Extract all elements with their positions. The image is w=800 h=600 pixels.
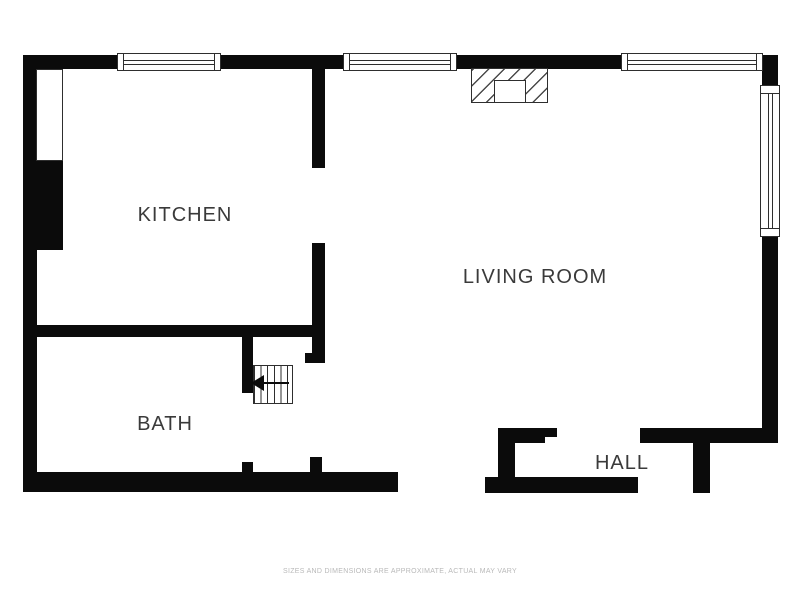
room-label-living-room: LIVING ROOM [445, 266, 625, 289]
hall-door-notch [545, 437, 557, 444]
kitchen-divider-lower [312, 243, 325, 363]
kitchen-divider-foot [305, 353, 313, 363]
hall-step-wall-vertical [693, 428, 710, 493]
fireplace-icon [471, 68, 548, 103]
window-frame-line [214, 54, 215, 70]
window-glass-line [627, 60, 757, 61]
window-frame-line [756, 54, 757, 70]
window-glass-line [768, 93, 769, 229]
fireplace-opening [494, 80, 526, 103]
window-glass-line [349, 64, 451, 65]
window-frame-line [123, 54, 124, 70]
window-frame-line [627, 54, 628, 70]
wall-alcove [36, 69, 63, 161]
door-jamb-stub-left [242, 462, 253, 472]
window-frame-line [450, 54, 451, 70]
window-glass-line [772, 93, 773, 229]
hall-right-wall-segment [640, 428, 693, 443]
window-glass-line [349, 60, 451, 61]
window-glass-line [123, 60, 215, 61]
window-symbol-living-right [621, 53, 763, 71]
kitchen-divider-upper [312, 69, 325, 168]
hall-top-right-horizontal [710, 428, 778, 443]
window-symbol-kitchen [117, 53, 221, 71]
disclaimer-text: SIZES AND DIMENSIONS ARE APPROXIMATE, AC… [0, 568, 800, 575]
room-label-bath: BATH [95, 413, 235, 436]
kitchen-bath-wall [23, 325, 325, 337]
window-frame-line [761, 93, 779, 94]
stair-direction-arrow-stem [262, 382, 289, 384]
window-symbol-right-wall [760, 85, 780, 237]
door-jamb-stub-right [310, 457, 322, 472]
chimney-breast [23, 160, 63, 250]
room-label-kitchen: KITCHEN [95, 204, 275, 227]
window-frame-line [349, 54, 350, 70]
window-glass-line [123, 64, 215, 65]
left-wall [23, 55, 37, 492]
window-glass-line [627, 64, 757, 65]
window-symbol-living-left [343, 53, 457, 71]
room-label-hall: HALL [552, 452, 692, 475]
floor-plan: KITCHEN LIVING ROOM BATH HALL SIZES AND … [0, 0, 800, 600]
window-frame-line [761, 228, 779, 229]
bath-bottom-wall [23, 472, 398, 492]
